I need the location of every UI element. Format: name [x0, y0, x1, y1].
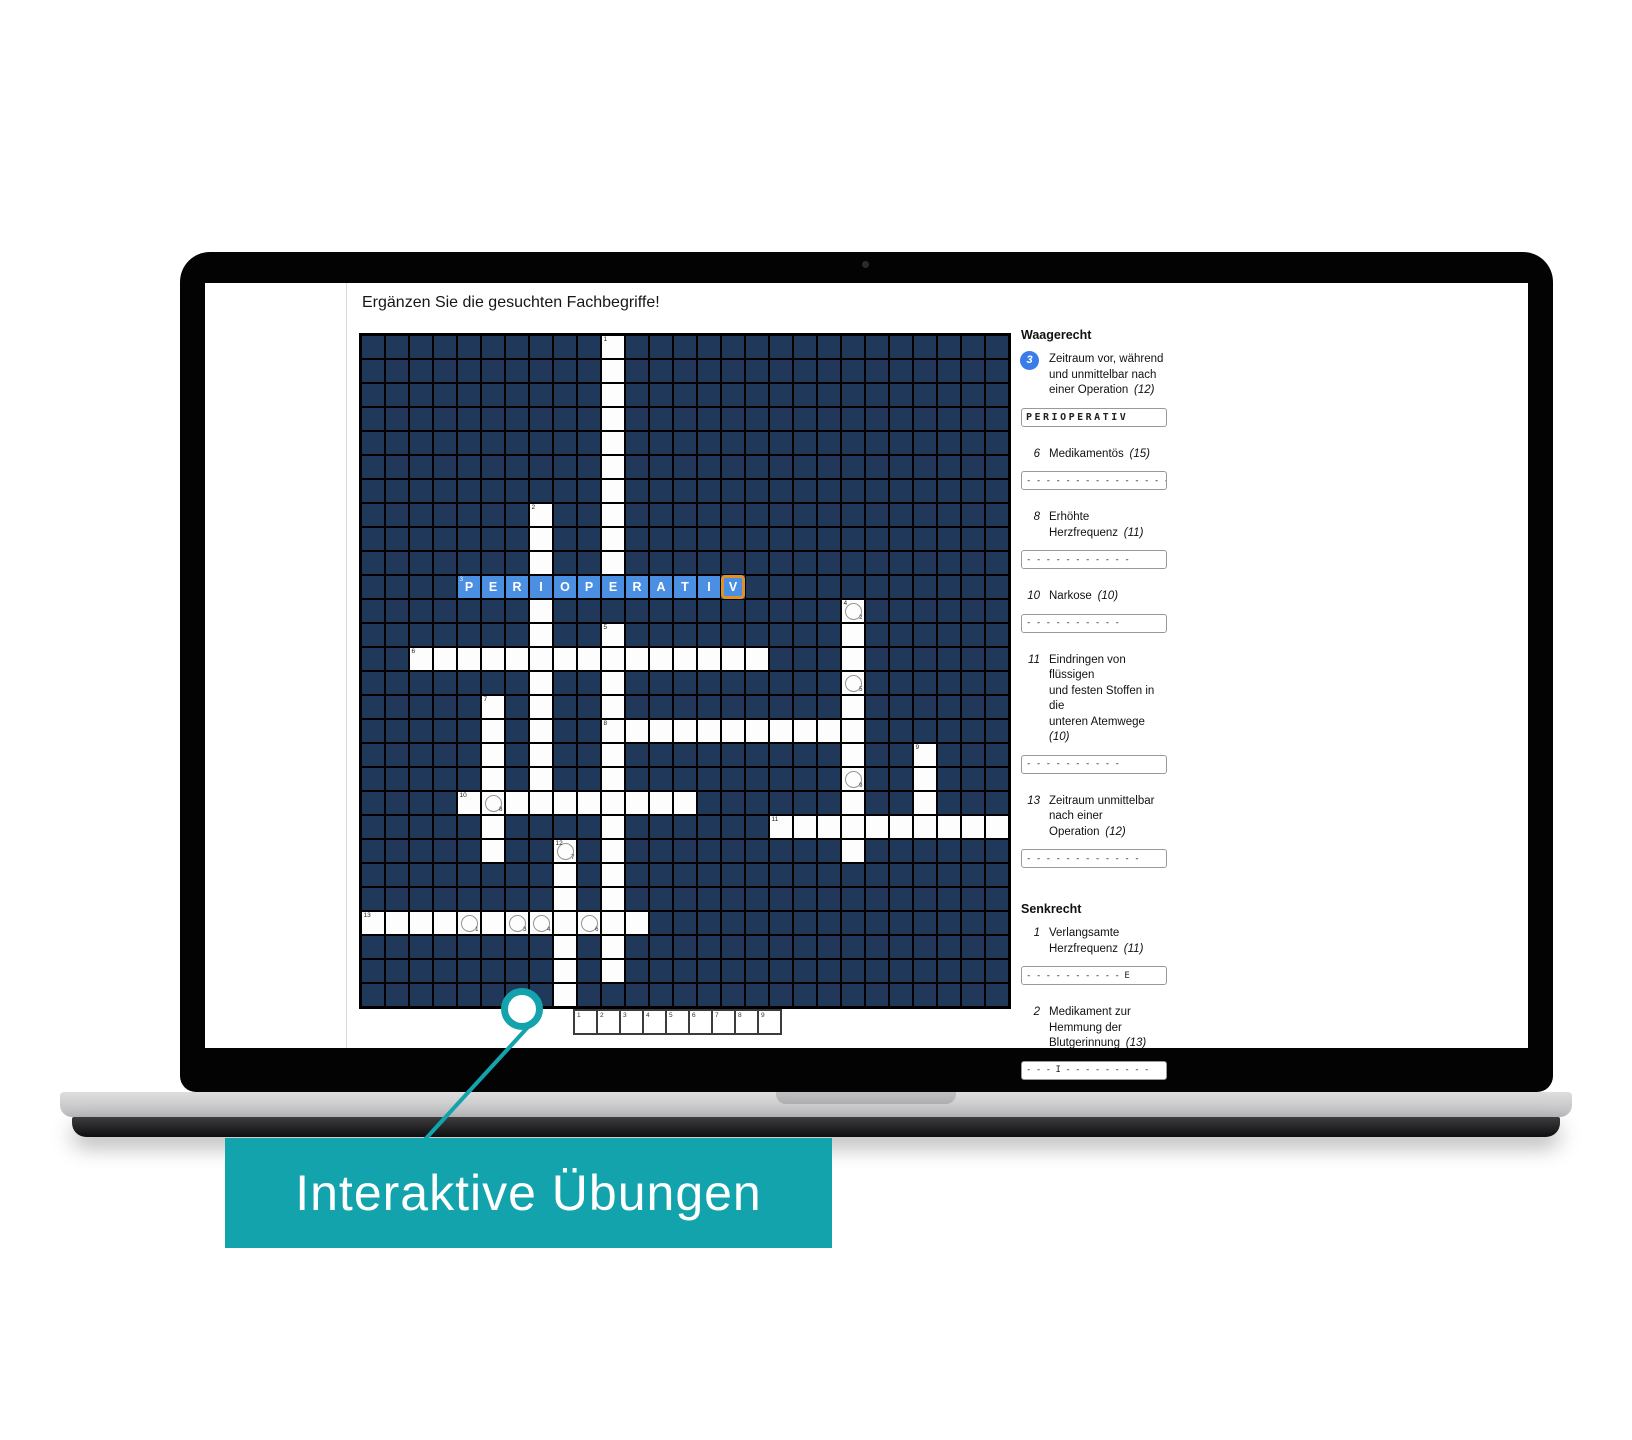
grid-cell-blocked: [913, 407, 937, 431]
grid-cell-blocked: [409, 839, 433, 863]
grid-cell-blocked: [769, 647, 793, 671]
solution-box[interactable]: 2: [596, 1009, 621, 1035]
grid-cell-blocked: [865, 479, 889, 503]
callout-banner: Interaktive Übungen: [225, 1138, 832, 1248]
grid-cell-blocked: [553, 335, 577, 359]
grid-cell-white[interactable]: [481, 743, 505, 767]
grid-cell-blocked: [529, 479, 553, 503]
grid-cell-white[interactable]: [745, 719, 769, 743]
grid-cell-blocked: [409, 431, 433, 455]
clue-text: Eindringen von flüssigenund festen Stoff…: [1049, 653, 1167, 746]
grid-cell-blocked: [673, 527, 697, 551]
grid-cell-white[interactable]: [793, 815, 817, 839]
grid-cell-blocked: [673, 839, 697, 863]
grid-cell-blocked: [721, 791, 745, 815]
grid-cell-white[interactable]: [553, 959, 577, 983]
grid-cell-white[interactable]: [601, 383, 625, 407]
grid-cell-white[interactable]: 6: [577, 911, 601, 935]
grid-cell-white[interactable]: 5: [841, 671, 865, 695]
grid-cell-blocked: [841, 383, 865, 407]
grid-cell-blocked: [505, 455, 529, 479]
clue-item: 13Zeitraum unmittelbarnach einerOperatio…: [1021, 794, 1167, 841]
grid-cell-blocked: [457, 479, 481, 503]
grid-cell-white[interactable]: [601, 935, 625, 959]
grid-cell-blocked: [769, 503, 793, 527]
grid-cell-white[interactable]: 4: [529, 911, 553, 935]
grid-cell-blocked: [577, 695, 601, 719]
grid-cell-white[interactable]: [481, 815, 505, 839]
grid-cell-blocked: [937, 455, 961, 479]
grid-cell-blocked: [673, 359, 697, 383]
grid-cell-white[interactable]: [625, 911, 649, 935]
grid-cell-blocked: [985, 455, 1009, 479]
solution-box[interactable]: 3: [619, 1009, 644, 1035]
grid-cell-blocked: [649, 407, 673, 431]
grid-cell-white[interactable]: E: [481, 575, 505, 599]
grid-cell-white[interactable]: [529, 623, 553, 647]
grid-cell-white[interactable]: R: [625, 575, 649, 599]
grid-cell-blocked: [697, 863, 721, 887]
grid-cell-white[interactable]: [841, 647, 865, 671]
grid-cell-white[interactable]: [601, 431, 625, 455]
grid-cell-blocked: [433, 503, 457, 527]
grid-cell-blocked: [457, 743, 481, 767]
grid-cell-blocked: [505, 335, 529, 359]
grid-cell-blocked: [985, 527, 1009, 551]
grid-cell-blocked: [409, 959, 433, 983]
grid-cell-blocked: [385, 623, 409, 647]
grid-cell-blocked: [361, 983, 385, 1007]
grid-cell-blocked: [625, 743, 649, 767]
grid-cell-white[interactable]: [673, 647, 697, 671]
grid-cell-blocked: [841, 911, 865, 935]
grid-cell-white[interactable]: 6: [409, 647, 433, 671]
clue-number-label: 10: [460, 792, 467, 800]
grid-cell-white[interactable]: [433, 911, 457, 935]
grid-cell-white[interactable]: [793, 719, 817, 743]
grid-cell-white[interactable]: 24: [841, 599, 865, 623]
grid-cell-blocked: [697, 431, 721, 455]
grid-cell-white[interactable]: [601, 647, 625, 671]
grid-cell-white[interactable]: [577, 791, 601, 815]
grid-cell-blocked: [697, 815, 721, 839]
grid-cell-blocked: [385, 839, 409, 863]
grid-cell-white[interactable]: [553, 887, 577, 911]
grid-cell-white[interactable]: [673, 719, 697, 743]
grid-cell-white[interactable]: [913, 791, 937, 815]
grid-cell-white[interactable]: [529, 767, 553, 791]
grid-cell-white[interactable]: [625, 791, 649, 815]
grid-cell-blocked: [625, 359, 649, 383]
grid-cell-blocked: [553, 407, 577, 431]
grid-cell-blocked: [865, 431, 889, 455]
grid-cell-blocked: [673, 863, 697, 887]
grid-cell-white[interactable]: [601, 743, 625, 767]
grid-cell-blocked: [769, 479, 793, 503]
grid-cell-white[interactable]: [553, 935, 577, 959]
grid-cell-blocked: [817, 455, 841, 479]
grid-cell-blocked: [913, 527, 937, 551]
grid-cell-white[interactable]: [985, 815, 1009, 839]
answer-input[interactable]: PERIOPERATIV: [1021, 408, 1167, 427]
grid-cell-white[interactable]: [841, 839, 865, 863]
grid-cell-white[interactable]: [601, 791, 625, 815]
grid-cell-blocked: [673, 887, 697, 911]
grid-cell-blocked: [745, 767, 769, 791]
grid-cell-white[interactable]: 7: [481, 695, 505, 719]
grid-cell-white[interactable]: I: [697, 575, 721, 599]
grid-cell-blocked: [577, 839, 601, 863]
grid-cell-blocked: [697, 695, 721, 719]
grid-cell-blocked: [937, 911, 961, 935]
grid-cell-white[interactable]: [649, 791, 673, 815]
grid-cell-blocked: [817, 647, 841, 671]
solution-box[interactable]: 9: [757, 1009, 782, 1035]
grid-cell-white[interactable]: [529, 791, 553, 815]
solution-box[interactable]: 6: [688, 1009, 713, 1035]
grid-cell-blocked: [697, 743, 721, 767]
grid-cell-white[interactable]: [817, 719, 841, 743]
grid-cell-white[interactable]: 5: [601, 623, 625, 647]
grid-cell-white[interactable]: [649, 719, 673, 743]
grid-cell-white[interactable]: [601, 959, 625, 983]
grid-cell-white[interactable]: [505, 791, 529, 815]
solution-box[interactable]: 4: [642, 1009, 667, 1035]
grid-cell-blocked: [409, 503, 433, 527]
grid-cell-blocked: [625, 599, 649, 623]
grid-cell-blocked: [385, 695, 409, 719]
grid-cell-blocked: [793, 599, 817, 623]
grid-cell-blocked: [889, 743, 913, 767]
grid-cell-white[interactable]: [481, 911, 505, 935]
clue-number: 3: [1021, 352, 1040, 399]
grid-cell-white[interactable]: [529, 599, 553, 623]
grid-cell-white[interactable]: [553, 647, 577, 671]
grid-cell-blocked: [385, 671, 409, 695]
grid-cell-white[interactable]: 712: [553, 839, 577, 863]
grid-cell-blocked: [529, 407, 553, 431]
grid-cell-blocked: [889, 887, 913, 911]
grid-cell-blocked: [961, 887, 985, 911]
grid-cell-white[interactable]: [913, 767, 937, 791]
clue-number-label: 9: [916, 744, 920, 752]
grid-cell-blocked: [625, 935, 649, 959]
grid-cell-blocked: [577, 455, 601, 479]
grid-cell-blocked: [745, 887, 769, 911]
grid-cell-blocked: [553, 623, 577, 647]
grid-cell-white[interactable]: 9: [841, 767, 865, 791]
grid-cell-white[interactable]: [601, 551, 625, 575]
grid-cell-blocked: [433, 335, 457, 359]
grid-cell-white[interactable]: [529, 671, 553, 695]
grid-cell-blocked: [649, 887, 673, 911]
grid-cell-blocked: [841, 959, 865, 983]
grid-cell-blocked: [433, 815, 457, 839]
grid-cell-white[interactable]: [553, 983, 577, 1007]
grid-cell-white[interactable]: 8: [601, 719, 625, 743]
grid-cell-white[interactable]: [529, 647, 553, 671]
grid-cell-white[interactable]: [529, 719, 553, 743]
grid-cell-blocked: [913, 719, 937, 743]
grid-cell-white[interactable]: [529, 743, 553, 767]
grid-cell-blocked: [793, 863, 817, 887]
grid-cell-blocked: [889, 623, 913, 647]
grid-cell-white[interactable]: [649, 647, 673, 671]
grid-cell-white[interactable]: [961, 815, 985, 839]
grid-cell-white[interactable]: [721, 719, 745, 743]
answer-length-note: (11): [1124, 943, 1144, 955]
grid-cell-blocked: [985, 911, 1009, 935]
solution-box[interactable]: 8: [734, 1009, 759, 1035]
answer-length-note: (12): [1134, 384, 1154, 396]
grid-cell-blocked: [457, 887, 481, 911]
grid-cell-blocked: [673, 911, 697, 935]
grid-cell-white[interactable]: [601, 839, 625, 863]
grid-cell-blocked: [769, 743, 793, 767]
grid-cell-blocked: [721, 623, 745, 647]
grid-cell-blocked: [409, 791, 433, 815]
grid-cell-white[interactable]: A: [649, 575, 673, 599]
grid-cell-white[interactable]: [697, 647, 721, 671]
grid-cell-white[interactable]: [625, 647, 649, 671]
grid-cell-white[interactable]: 1: [457, 911, 481, 935]
grid-cell-blocked: [865, 839, 889, 863]
grid-cell-white[interactable]: [913, 815, 937, 839]
grid-cell-white[interactable]: [841, 791, 865, 815]
grid-cell-white[interactable]: [601, 815, 625, 839]
grid-cell-white[interactable]: P: [577, 575, 601, 599]
grid-cell-blocked: [409, 695, 433, 719]
grid-cell-white[interactable]: [457, 647, 481, 671]
grid-cell-white[interactable]: [841, 623, 865, 647]
grid-cell-blocked: [961, 743, 985, 767]
grid-cell-blocked: [937, 503, 961, 527]
answer-length-note: (13): [1126, 1037, 1146, 1049]
grid-cell-blocked: [913, 887, 937, 911]
grid-cell-white[interactable]: [937, 815, 961, 839]
grid-cell-white[interactable]: [433, 647, 457, 671]
grid-cell-white[interactable]: 2: [529, 503, 553, 527]
grid-cell-white[interactable]: R: [505, 575, 529, 599]
grid-cell-blocked: [361, 767, 385, 791]
grid-cell-white[interactable]: [481, 839, 505, 863]
grid-cell-blocked: [409, 767, 433, 791]
grid-cell-blocked: [865, 503, 889, 527]
grid-cell-white[interactable]: O: [553, 575, 577, 599]
grid-cell-blocked: [721, 935, 745, 959]
answer-input[interactable]: - - - - - - - - - -: [1021, 614, 1167, 633]
grid-cell-white[interactable]: [841, 743, 865, 767]
grid-cell-blocked: [673, 935, 697, 959]
grid-cell-white[interactable]: [721, 647, 745, 671]
grid-cell-blocked: [817, 359, 841, 383]
grid-cell-white[interactable]: [529, 527, 553, 551]
grid-cell-blocked: [433, 767, 457, 791]
grid-cell-white[interactable]: [817, 815, 841, 839]
grid-cell-white[interactable]: [601, 887, 625, 911]
grid-cell-white[interactable]: [481, 767, 505, 791]
grid-cell-white[interactable]: 3P: [457, 575, 481, 599]
grid-cell-white[interactable]: [601, 767, 625, 791]
solution-box[interactable]: 1: [573, 1009, 598, 1035]
grid-cell-white[interactable]: [841, 815, 865, 839]
grid-cell-white[interactable]: I: [529, 575, 553, 599]
grid-cell-blocked: [865, 743, 889, 767]
grid-cell-white[interactable]: [553, 863, 577, 887]
grid-cell-white[interactable]: [529, 695, 553, 719]
grid-cell-blocked: [553, 599, 577, 623]
answer-input[interactable]: - - - - - - - - - -: [1021, 755, 1167, 774]
grid-cell-blocked: [385, 959, 409, 983]
grid-cell-blocked: [745, 983, 769, 1007]
grid-cell-white[interactable]: [601, 695, 625, 719]
grid-cell-white[interactable]: [601, 479, 625, 503]
grid-cell-white[interactable]: [577, 647, 601, 671]
grid-cell-blocked: [889, 503, 913, 527]
grid-cell-blocked: [625, 455, 649, 479]
grid-cell-blocked: [505, 719, 529, 743]
grid-cell-blocked: [409, 599, 433, 623]
grid-cell-blocked: [409, 407, 433, 431]
grid-cell-white[interactable]: [481, 647, 505, 671]
grid-cell-white[interactable]: [601, 911, 625, 935]
solution-strip: 123456789: [573, 1009, 782, 1035]
grid-cell-blocked: [505, 743, 529, 767]
grid-cell-white[interactable]: [841, 719, 865, 743]
grid-cell-white[interactable]: 11: [769, 815, 793, 839]
grid-cell-blocked: [505, 527, 529, 551]
grid-cell-blocked: [769, 599, 793, 623]
grid-cell-blocked: [793, 383, 817, 407]
answer-length-note: (10): [1098, 590, 1118, 602]
grid-cell-blocked: [673, 599, 697, 623]
callout-line: [405, 1015, 540, 1150]
across-header: Waagerecht: [1021, 328, 1167, 342]
grid-cell-blocked: [865, 959, 889, 983]
grid-cell-blocked: [985, 671, 1009, 695]
grid-cell-white[interactable]: [889, 815, 913, 839]
grid-cell-white[interactable]: [601, 407, 625, 431]
grid-cell-blocked: [697, 983, 721, 1007]
grid-cell-white[interactable]: [745, 647, 769, 671]
grid-cell-blocked: [937, 335, 961, 359]
solution-box[interactable]: 7: [711, 1009, 736, 1035]
grid-cell-blocked: [889, 479, 913, 503]
grid-cell-blocked: [817, 407, 841, 431]
grid-cell-white[interactable]: [409, 911, 433, 935]
laptop-base-notch: [776, 1092, 956, 1104]
grid-cell-white[interactable]: [697, 719, 721, 743]
grid-cell-blocked: [817, 983, 841, 1007]
solution-circle-digit: 1: [475, 927, 478, 934]
grid-cell-white[interactable]: 10: [457, 791, 481, 815]
grid-cell-white[interactable]: [601, 359, 625, 383]
grid-cell-blocked: [817, 791, 841, 815]
answer-length-note: (11): [1124, 527, 1144, 539]
grid-cell-blocked: [769, 839, 793, 863]
grid-cell-white[interactable]: V: [721, 575, 745, 599]
grid-cell-blocked: [745, 839, 769, 863]
grid-cell-blocked: [985, 335, 1009, 359]
grid-cell-white[interactable]: [529, 551, 553, 575]
grid-cell-blocked: [817, 503, 841, 527]
grid-cell-white[interactable]: T: [673, 575, 697, 599]
grid-cell-white[interactable]: [505, 647, 529, 671]
grid-cell-blocked: [985, 551, 1009, 575]
grid-cell-white[interactable]: [601, 527, 625, 551]
grid-cell-blocked: [985, 719, 1009, 743]
grid-cell-blocked: [457, 719, 481, 743]
answer-input[interactable]: - - - - - - - - - - -: [1021, 550, 1167, 569]
grid-cell-blocked: [361, 623, 385, 647]
grid-cell-white[interactable]: [865, 815, 889, 839]
answer-input[interactable]: - - - - - - - - - - - -: [1021, 849, 1167, 868]
grid-cell-white[interactable]: 3: [505, 911, 529, 935]
grid-cell-blocked: [889, 599, 913, 623]
grid-cell-white[interactable]: [673, 791, 697, 815]
grid-cell-white[interactable]: 8: [481, 791, 505, 815]
grid-cell-blocked: [433, 743, 457, 767]
grid-cell-blocked: [625, 407, 649, 431]
grid-cell-blocked: [889, 719, 913, 743]
grid-cell-white[interactable]: [385, 911, 409, 935]
answer-input[interactable]: - - - - - - - - - - - - - - -: [1021, 471, 1167, 490]
grid-cell-white[interactable]: [601, 455, 625, 479]
grid-cell-blocked: [673, 767, 697, 791]
grid-cell-blocked: [361, 503, 385, 527]
grid-cell-white[interactable]: [625, 719, 649, 743]
grid-cell-blocked: [913, 479, 937, 503]
grid-cell-blocked: [625, 767, 649, 791]
grid-cell-white[interactable]: 9: [913, 743, 937, 767]
grid-cell-blocked: [649, 479, 673, 503]
answer-input[interactable]: - - - - - - - - - - E: [1021, 966, 1167, 985]
clue-text: VerlangsamteHerzfrequenz (11): [1049, 926, 1143, 957]
grid-cell-white[interactable]: [553, 911, 577, 935]
grid-cell-blocked: [577, 551, 601, 575]
grid-cell-white[interactable]: [841, 695, 865, 719]
grid-cell-blocked: [745, 695, 769, 719]
grid-cell-white[interactable]: [601, 671, 625, 695]
grid-cell-blocked: [817, 863, 841, 887]
grid-cell-blocked: [433, 695, 457, 719]
grid-cell-blocked: [937, 479, 961, 503]
grid-cell-blocked: [625, 863, 649, 887]
grid-cell-blocked: [913, 551, 937, 575]
answer-input[interactable]: - - - I - - - - - - - - -: [1021, 1061, 1167, 1080]
grid-cell-blocked: [649, 743, 673, 767]
grid-cell-white[interactable]: 1: [601, 335, 625, 359]
grid-cell-white[interactable]: [601, 863, 625, 887]
grid-cell-white[interactable]: [601, 503, 625, 527]
grid-cell-blocked: [457, 959, 481, 983]
grid-cell-blocked: [769, 983, 793, 1007]
grid-cell-white[interactable]: E: [601, 575, 625, 599]
grid-cell-blocked: [961, 527, 985, 551]
grid-cell-blocked: [841, 479, 865, 503]
grid-cell-blocked: [937, 695, 961, 719]
grid-cell-white[interactable]: 13: [361, 911, 385, 935]
grid-cell-blocked: [649, 599, 673, 623]
grid-cell-white[interactable]: [553, 791, 577, 815]
grid-cell-blocked: [673, 959, 697, 983]
grid-cell-blocked: [817, 623, 841, 647]
grid-cell-white[interactable]: [769, 719, 793, 743]
grid-cell-blocked: [649, 839, 673, 863]
grid-cell-white[interactable]: [481, 719, 505, 743]
solution-circle-digit: 5: [859, 687, 862, 694]
solution-box[interactable]: 5: [665, 1009, 690, 1035]
